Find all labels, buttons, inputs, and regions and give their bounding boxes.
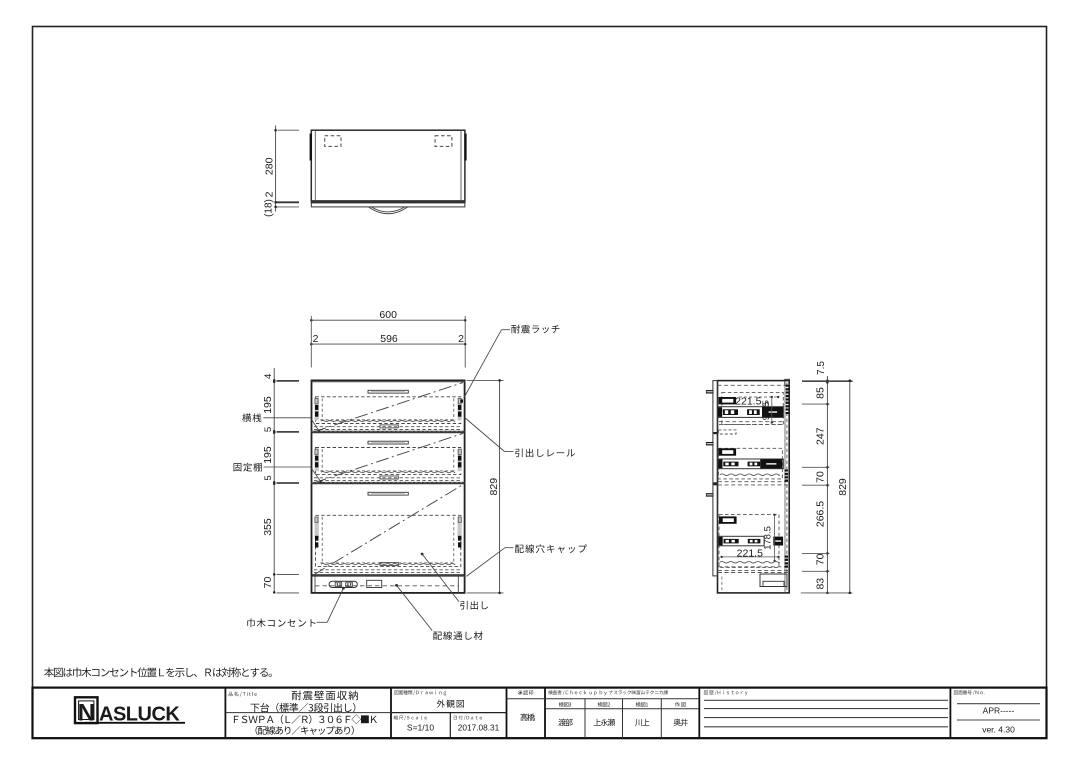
svg-text:ver. 4.30: ver. 4.30 — [982, 725, 1015, 735]
svg-text:APR-----: APR----- — [983, 706, 1015, 716]
svg-text:247: 247 — [815, 427, 827, 445]
svg-text:829: 829 — [837, 478, 849, 496]
svg-text:5: 5 — [263, 475, 274, 480]
svg-text:98.5: 98.5 — [761, 402, 772, 421]
svg-text:829: 829 — [488, 478, 500, 496]
svg-text:85: 85 — [815, 387, 827, 399]
svg-text:S=1/10: S=1/10 — [407, 723, 434, 733]
svg-text:2: 2 — [458, 333, 464, 345]
svg-text:596: 596 — [380, 333, 398, 345]
svg-text:70: 70 — [262, 577, 274, 589]
svg-text:83: 83 — [815, 578, 827, 590]
svg-text:600: 600 — [379, 309, 397, 321]
svg-text:2017.08.31: 2017.08.31 — [458, 723, 500, 733]
svg-text:70: 70 — [815, 471, 827, 483]
svg-text:2: 2 — [264, 191, 276, 197]
svg-text:7.5: 7.5 — [816, 361, 827, 375]
svg-text:4: 4 — [263, 374, 274, 379]
svg-text:221.5: 221.5 — [737, 547, 763, 559]
svg-text:266.5: 266.5 — [815, 501, 827, 527]
svg-text:5: 5 — [263, 427, 274, 432]
svg-text:70: 70 — [815, 553, 827, 565]
svg-text:(18): (18) — [264, 199, 275, 217]
svg-text:195: 195 — [262, 446, 274, 464]
svg-text:280: 280 — [264, 157, 276, 175]
svg-text:2: 2 — [313, 333, 319, 345]
svg-text:355: 355 — [262, 518, 274, 536]
svg-text:195: 195 — [262, 396, 274, 414]
svg-text:178.5: 178.5 — [763, 526, 774, 550]
